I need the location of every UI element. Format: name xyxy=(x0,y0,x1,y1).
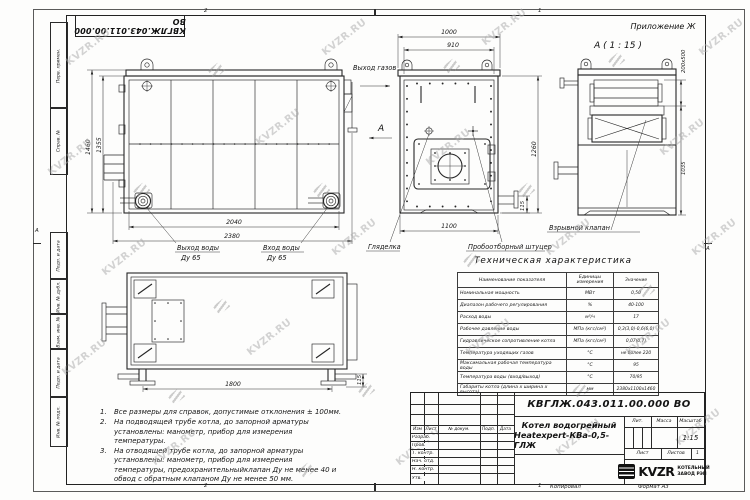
label-explosion-valve: Взрывной клапан xyxy=(549,224,611,232)
note-text: На отводящей трубе котла, до запорной ар… xyxy=(114,447,346,484)
detail-title: А ( 1 : 15 ) xyxy=(593,41,642,51)
spec-value: 17 xyxy=(614,312,659,324)
col-header-doc: № докум. xyxy=(438,425,480,433)
spec-param: Гидравлическое сопротивление котла xyxy=(458,336,567,348)
product-name-line2: Heatexpert-КВа-0,5-ГЛЖ xyxy=(514,430,624,451)
company-line1: КОТЕЛЬНЫЙ xyxy=(677,466,709,472)
dim-front-width: 1000 xyxy=(441,29,457,36)
spec-value: 0,3(3,0)-0,6(6,0) xyxy=(614,324,659,336)
product-name-line1: Котел водогрейный xyxy=(522,420,617,430)
spec-param: Рабочее давление воды xyxy=(458,324,567,336)
notes-block: 1. Все размеры для справок, допустимые о… xyxy=(100,408,400,485)
spec-value: 70/95 xyxy=(614,372,659,384)
dim-side-width-inner: 2040 xyxy=(226,219,242,226)
spec-table: Наименование показателя Единицы измерени… xyxy=(457,272,659,396)
drawing-sheet: 2 1 2 1 А А Копировал Формат А3 КВГЛЖ.04… xyxy=(0,0,750,500)
spec-unit: °С xyxy=(567,372,614,384)
dim-front-width-inner: 910 xyxy=(447,42,459,49)
label-sight-glass: Гляделка xyxy=(368,243,401,251)
spec-param: Диапазон рабочего регулирования xyxy=(458,300,567,312)
spec-header: Единицы измерения xyxy=(567,273,614,288)
title-block-doc-number: КВГЛЖ.043.011.00.000 ВО xyxy=(514,393,704,416)
label-sampling-fitting: Пробоотборный штуцер xyxy=(468,243,552,251)
spec-unit: % xyxy=(567,300,614,312)
sheets-value: 1 xyxy=(691,448,704,459)
company-name: КОТЕЛЬНЫЙ ЗАВОД РЭП xyxy=(677,466,709,477)
sheet-label: Лист xyxy=(624,448,661,459)
note-text: Все размеры для справок, допустимые откл… xyxy=(114,408,346,417)
row-label-tkontr: Т. контр. xyxy=(412,451,438,456)
note-item: 1. Все размеры для справок, допустимые о… xyxy=(100,408,400,417)
row-label-nachotd: Нач. отд. xyxy=(412,459,438,464)
spec-param: Температура воды (вход/выход) xyxy=(458,372,567,384)
dim-top-leg: 115 xyxy=(357,374,363,385)
spec-param: Расход воды xyxy=(458,312,567,324)
spec-param: Номинальная мощность xyxy=(458,288,567,300)
title-block: КВГЛЖ.043.011.00.000 ВО Котел водогрейны… xyxy=(410,392,705,485)
label-water-inlet-dn: Ду 65 xyxy=(266,254,287,262)
note-number: 1. xyxy=(100,408,114,417)
dim-side-height: 1460 xyxy=(85,139,92,155)
spec-row: Номинальная мощностьМВт0,50 xyxy=(458,288,659,300)
kvzr-logo-icon xyxy=(618,464,635,479)
spec-row: Максимальная рабочая температура воды°С9… xyxy=(458,360,659,372)
row-label-nkontr: Н. контр. xyxy=(412,467,438,472)
note-text: На подводящей трубе котла, до запорной а… xyxy=(114,418,346,446)
spec-unit: МПа (кгс/см²) xyxy=(567,336,614,348)
logo-text: KVZR xyxy=(638,464,674,479)
note-number: 3. xyxy=(100,447,114,484)
spec-header: Наименование показателя xyxy=(458,273,567,288)
lit-label: Лит. xyxy=(624,416,651,427)
dim-side-width: 2380 xyxy=(224,233,240,240)
view-direction-letter: А xyxy=(377,124,384,134)
spec-row: Температура воды (вход/выход)°С70/95 xyxy=(458,372,659,384)
sheets-label: Листов xyxy=(661,448,691,459)
product-name: Котел водогрейный Heatexpert-КВа-0,5-ГЛЖ xyxy=(514,416,624,454)
spec-unit: МПа (кгс/см²) xyxy=(567,324,614,336)
col-header-data: Дата xyxy=(497,425,514,433)
view-side: 1460 1355 2040 2380 Выход воды Ду 65 Вхо… xyxy=(85,59,396,262)
spec-param: Температура уходящих газов xyxy=(458,348,567,360)
note-item: 3. На отводящей трубе котла, до запорной… xyxy=(100,447,400,484)
appendix-label: Приложение Ж xyxy=(631,22,696,31)
col-header-list: Лист xyxy=(424,425,438,433)
company-line2: ЗАВОД РЭП xyxy=(677,472,709,478)
spec-unit: °С xyxy=(567,348,614,360)
dim-side-height-inner: 1355 xyxy=(96,137,103,153)
dim-front-height: 1260 xyxy=(531,141,538,157)
spec-row: Расход водым³/ч17 xyxy=(458,312,659,324)
spec-param: Максимальная рабочая температура воды xyxy=(458,360,567,372)
dim-front-bottom: 1100 xyxy=(441,223,457,230)
spec-value: 0,07(0,7) xyxy=(614,336,659,348)
label-water-outlet-dn: Ду 65 xyxy=(180,254,201,262)
row-label-razrab: Разраб. xyxy=(412,435,438,440)
label-gas-outlet: Выход газов xyxy=(353,64,396,72)
row-label-utv: Утв. xyxy=(412,476,438,481)
spec-value: не более 220 xyxy=(614,348,659,360)
spec-table-title: Техническая характеристика xyxy=(458,256,648,266)
dim-front-stub: 115 xyxy=(520,200,526,211)
dim-detail-slot: 200х500 xyxy=(681,49,687,73)
note-item: 2. На подводящей трубе котла, до запорно… xyxy=(100,418,400,446)
col-header-podp: Подп. xyxy=(480,425,497,433)
row-label-prov: Пров. xyxy=(412,443,438,448)
view-detail-a: Приложение Ж А ( 1 : 15 ) 200х500 xyxy=(547,22,696,232)
spec-row: Рабочее давление водыМПа (кгс/см²)0,3(3,… xyxy=(458,324,659,336)
view-front: 1000 910 1260 1100 115 Гляделка Пробоотб… xyxy=(366,29,552,251)
spec-value: 0,50 xyxy=(614,288,659,300)
spec-row: Температура уходящих газов°Сне более 220 xyxy=(458,348,659,360)
dim-top-length: 1800 xyxy=(225,381,241,388)
company-logo: KVZR КОТЕЛЬНЫЙ ЗАВОД РЭП xyxy=(624,459,704,484)
label-water-inlet: Вход воды xyxy=(263,244,300,252)
spec-value: 40-100 xyxy=(614,300,659,312)
spec-unit: м³/ч xyxy=(567,312,614,324)
view-top: 1800 115 xyxy=(102,273,367,392)
spec-row: Гидравлическое сопротивление котлаМПа (к… xyxy=(458,336,659,348)
spec-row: Диапазон рабочего регулирования%40-100 xyxy=(458,300,659,312)
dim-detail-height: 1035 xyxy=(681,161,687,175)
note-number: 2. xyxy=(100,418,114,446)
spec-unit: МВт xyxy=(567,288,614,300)
spec-header: Значение xyxy=(614,273,659,288)
spec-value: 95 xyxy=(614,360,659,372)
label-water-outlet: Выход воды xyxy=(177,244,219,252)
scale-label: Масштаб xyxy=(677,416,704,427)
spec-header-row: Наименование показателя Единицы измерени… xyxy=(458,273,659,288)
scale-value: 1:15 xyxy=(677,427,704,448)
col-header-izm: Изм xyxy=(411,425,424,433)
mass-label: Масса xyxy=(651,416,677,427)
spec-unit: °С xyxy=(567,360,614,372)
